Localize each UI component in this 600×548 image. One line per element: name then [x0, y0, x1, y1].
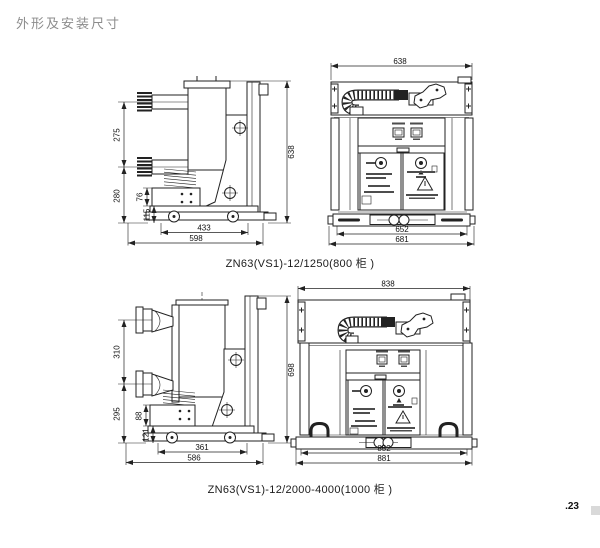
dim-label: 433	[197, 224, 211, 233]
page-number: .23	[565, 501, 579, 512]
dim-label: 838	[381, 280, 395, 289]
operation-counter	[375, 375, 386, 379]
right-side-plate	[465, 118, 473, 210]
dim-label: 121	[142, 428, 151, 442]
dim-label: 76	[136, 192, 145, 201]
dim-label: 586	[187, 454, 201, 463]
base-slot	[441, 219, 463, 222]
cabinet-top-section	[331, 77, 472, 115]
fig1-drawing: 275 280 76 115 433	[0, 55, 600, 255]
fig1-caption: ZN63(VS1)-12/1250(800 柜 )	[0, 255, 600, 271]
left-side-plate	[331, 118, 339, 210]
fig2-side-view: 310 295 88 121 361	[113, 292, 297, 465]
fig1-front-view: 638	[328, 57, 475, 246]
dim-label: 310	[113, 345, 122, 359]
wheel	[225, 432, 236, 443]
dim-fig1-pole-pitch: 275	[113, 102, 125, 167]
dim-label: 852	[377, 444, 391, 453]
breaker-front-panel	[346, 350, 420, 435]
page-corner-mark	[591, 506, 600, 515]
dim-fig1-wheel-base: 433	[161, 223, 248, 235]
interlock-box	[150, 405, 195, 426]
dim-label: 881	[377, 454, 391, 463]
dim-label: 681	[395, 235, 409, 244]
pole-assembly	[152, 76, 230, 174]
wheel	[169, 211, 180, 222]
operation-counter	[397, 148, 409, 152]
dim-fig1-depth: 598	[128, 223, 263, 246]
pole-assembly	[172, 292, 228, 402]
wheel	[167, 432, 178, 443]
dim-label: 638	[287, 145, 296, 159]
dim-label: 295	[113, 407, 122, 421]
wheel	[228, 211, 239, 222]
interlock-box	[152, 188, 200, 206]
dim-fig2-pole-pitch: 310	[113, 320, 125, 384]
dim-label: 275	[113, 128, 122, 142]
dim-label: 280	[113, 189, 122, 203]
fig1-side-view: 275 280 76 115 433	[113, 76, 297, 246]
fig2-drawing: 310 295 88 121 361	[0, 280, 600, 480]
fig2-caption: ZN63(VS1)-12/2000-4000(1000 柜 )	[0, 481, 600, 497]
dim-label: 361	[195, 443, 209, 452]
breaker-front-panel	[358, 118, 445, 210]
cabinet-top-section	[298, 294, 470, 343]
dim-fig1-top-width: 638	[331, 57, 472, 80]
right-side-plate	[463, 343, 472, 435]
dim-label: 652	[395, 225, 409, 234]
catalog-page: 外形及安装尺寸	[0, 0, 600, 548]
page-title: 外形及安装尺寸	[16, 13, 121, 32]
dim-fig1-base-width: 652	[337, 225, 467, 236]
dim-label: 115	[143, 208, 152, 221]
chassis	[146, 206, 276, 222]
dim-label: 88	[135, 411, 144, 420]
chassis	[144, 426, 274, 443]
left-side-plate	[300, 343, 309, 435]
fig2-front-view: 838	[291, 280, 477, 466]
dim-fig2-top-width: 838	[298, 280, 470, 300]
dim-label: 598	[189, 234, 203, 243]
dim-label: 698	[287, 363, 296, 377]
dim-label: 638	[393, 57, 407, 66]
dim-fig2-wheel-base: 361	[158, 443, 247, 455]
base-slot	[338, 219, 360, 222]
